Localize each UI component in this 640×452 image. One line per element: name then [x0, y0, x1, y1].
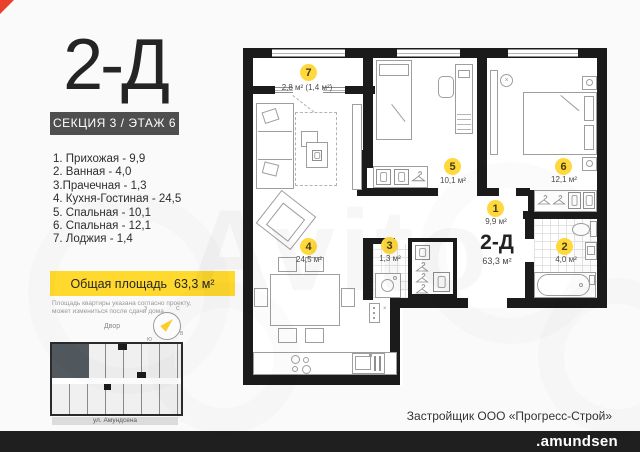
room-bubble-6: 6 — [555, 158, 572, 175]
room-area-6: 12,1 м² — [524, 175, 604, 184]
decor-icon — [312, 150, 322, 161]
room-bubble-1: 1 — [487, 200, 504, 217]
room-area-2: 4,0 м² — [526, 255, 606, 264]
bathtub-faucet — [589, 275, 595, 285]
wall-bottom-kitchen — [243, 375, 400, 385]
room-list-item: 7. Лоджия - 1,4 — [53, 233, 253, 246]
disclaimer: Площадь квартиры указана согласно проект… — [52, 300, 222, 316]
room-list-item: 2. Ванная - 4,0 — [53, 166, 253, 179]
room-bubble-3: 3 — [381, 237, 398, 254]
compass-needle — [160, 316, 176, 332]
kitchen-sink-bowl — [355, 356, 371, 370]
room-bubble-2: 2 — [556, 238, 573, 255]
compass-w: З — [144, 306, 147, 312]
window-bedroom6 — [508, 49, 578, 57]
nightstand-knob — [586, 160, 593, 167]
minimap-shaft — [137, 372, 146, 378]
hanger-icon — [552, 194, 566, 207]
total-area-box: Общая площадь 63,3 м² — [50, 271, 235, 296]
tv-console — [352, 104, 362, 190]
panel-x-mark: × — [383, 306, 387, 312]
hanger-icon — [415, 262, 429, 273]
wardrobe-box-icon — [394, 169, 409, 185]
toilet-bowl — [572, 223, 590, 236]
chair — [305, 328, 324, 343]
compass-n: С — [176, 306, 180, 312]
bathtub-drain — [579, 283, 583, 287]
wall-left — [243, 48, 253, 385]
hanger-icon — [537, 194, 551, 207]
street-label: ул. Амундсена — [52, 417, 178, 425]
minimap-shaft — [104, 384, 111, 390]
plan-unit-area: 63,3 м² — [472, 256, 522, 266]
wardrobe-box-icon — [433, 272, 450, 292]
room-list-item: 6. Спальная - 12,1 — [53, 220, 253, 233]
wall-bed6-bottom-a — [487, 188, 499, 196]
desk-shelf — [457, 110, 471, 130]
compass-icon — [153, 312, 181, 340]
room-list-item: 1. Прихожая - 9,9 — [53, 153, 253, 166]
yard-label: Двор — [104, 323, 120, 330]
wall-bottom-hall-right — [507, 298, 607, 308]
dresser — [490, 70, 498, 155]
room-list-item: 5. Спальная - 10,1 — [53, 207, 253, 220]
panel-dot — [373, 317, 375, 319]
wall-bath-left-b — [525, 262, 534, 298]
room-bubble-4: 4 — [300, 238, 317, 255]
wardrobe-box-icon — [376, 169, 391, 185]
window-bedroom5 — [397, 49, 460, 57]
room-area-5: 10,1 м² — [413, 176, 493, 185]
wall-laundry-left — [363, 238, 373, 300]
brand-bar: .amundsen — [0, 431, 640, 452]
room-bubble-7: 7 — [300, 64, 317, 81]
monitor — [458, 70, 470, 78]
armchair-seat — [266, 203, 305, 242]
room-list-item: 4. Кухня-Гостиная - 24,5 — [53, 193, 253, 206]
stove-burner — [291, 355, 300, 364]
faucet-icon — [369, 354, 372, 357]
chair — [341, 288, 355, 307]
panel-dot — [373, 312, 375, 314]
floorplan-page: 2-Д СЕКЦИЯ 3 / ЭТАЖ 6 1. Прихожая - 9,9 … — [0, 0, 640, 452]
stove-burner — [302, 365, 311, 374]
wall-bottom-hall-left — [390, 298, 468, 308]
washer-drum — [381, 279, 394, 292]
minimap-units-bottom — [52, 384, 181, 414]
room-area-3: 1,3 м² — [350, 254, 430, 263]
toilet-tank — [590, 221, 597, 237]
desk-chair — [438, 76, 454, 98]
stove-burner — [292, 366, 298, 372]
panel-dot — [373, 307, 375, 309]
section-floor-badge: СЕКЦИЯ 3 / ЭТАЖ 6 — [50, 112, 179, 135]
window-loggia — [272, 49, 345, 57]
room-area-4: 24,5 м² — [269, 255, 349, 264]
bed-pillow — [584, 125, 594, 150]
wall-bed5-bottom — [357, 188, 438, 196]
ceiling-light-icon: × — [500, 74, 513, 87]
minimap-corridor — [52, 378, 181, 384]
sofa-cushion-line — [258, 131, 292, 132]
plan-unit-label: 2-Д — [472, 231, 522, 255]
minimap-shaft — [118, 344, 127, 350]
stove-burner — [303, 357, 309, 363]
chair — [278, 328, 297, 343]
bed-pillow — [584, 96, 594, 121]
unit-title: 2-Д — [36, 28, 194, 102]
bath-sink-bowl — [587, 246, 595, 255]
wardrobe-box-icon — [583, 192, 595, 209]
minimap-highlighted-unit — [52, 344, 89, 378]
room-list-item: 3.Прачечная - 1,3 — [53, 180, 253, 193]
chair — [254, 288, 268, 307]
building-minimap — [50, 342, 183, 416]
hanger-icon — [415, 284, 429, 295]
nightstand-knob — [586, 79, 593, 86]
dish-rack-icon — [374, 356, 383, 371]
compass-e: В — [180, 331, 183, 337]
bed-pillow — [379, 64, 409, 76]
room-area-7: 2,8 м² (1,4 м²) — [267, 83, 347, 92]
total-area-label: Общая площадь — [70, 277, 167, 291]
total-area-value: 63,3 м² — [174, 277, 215, 291]
developer-label: Застройщик ООО «Прогресс-Строй» — [262, 409, 612, 423]
room-area-1: 9,9 м² — [456, 217, 536, 226]
hanger-icon — [415, 273, 429, 284]
room-bubble-5: 5 — [444, 158, 461, 175]
sofa-cushion-line — [258, 159, 292, 160]
wardrobe-box-icon — [568, 192, 581, 209]
washer-knob — [393, 276, 397, 280]
corner-ribbon — [0, 0, 14, 14]
dining-table — [270, 274, 340, 326]
room-list: 1. Прихожая - 9,9 2. Ванная - 4,0 3.Прач… — [53, 153, 253, 247]
